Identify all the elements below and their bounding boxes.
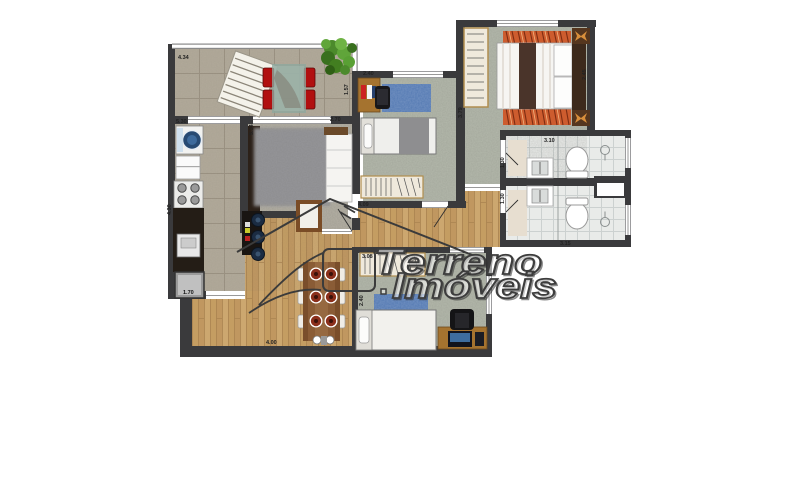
svg-text:3.10: 3.10 bbox=[544, 138, 555, 144]
svg-text:3.15: 3.15 bbox=[560, 241, 571, 247]
svg-text:5.34: 5.34 bbox=[249, 123, 255, 135]
svg-text:Imóveis: Imóveis bbox=[392, 265, 557, 306]
svg-text:1.30: 1.30 bbox=[500, 193, 506, 204]
svg-text:2.40: 2.40 bbox=[363, 71, 374, 77]
svg-text:1.70: 1.70 bbox=[183, 290, 194, 296]
svg-text:4.09: 4.09 bbox=[358, 202, 369, 208]
svg-text:4.30: 4.30 bbox=[167, 204, 173, 215]
svg-text:4.00: 4.00 bbox=[266, 340, 277, 346]
svg-text:3.08: 3.08 bbox=[362, 254, 373, 260]
svg-text:2.40: 2.40 bbox=[359, 295, 365, 306]
svg-text:1.30: 1.30 bbox=[500, 157, 506, 168]
svg-text:1.57: 1.57 bbox=[344, 84, 350, 95]
svg-text:3.79: 3.79 bbox=[458, 107, 464, 118]
svg-text:2.70: 2.70 bbox=[330, 117, 341, 123]
svg-text:5.30: 5.30 bbox=[176, 119, 187, 125]
svg-text:4.34: 4.34 bbox=[178, 55, 190, 61]
svg-text:2.45: 2.45 bbox=[582, 69, 588, 80]
